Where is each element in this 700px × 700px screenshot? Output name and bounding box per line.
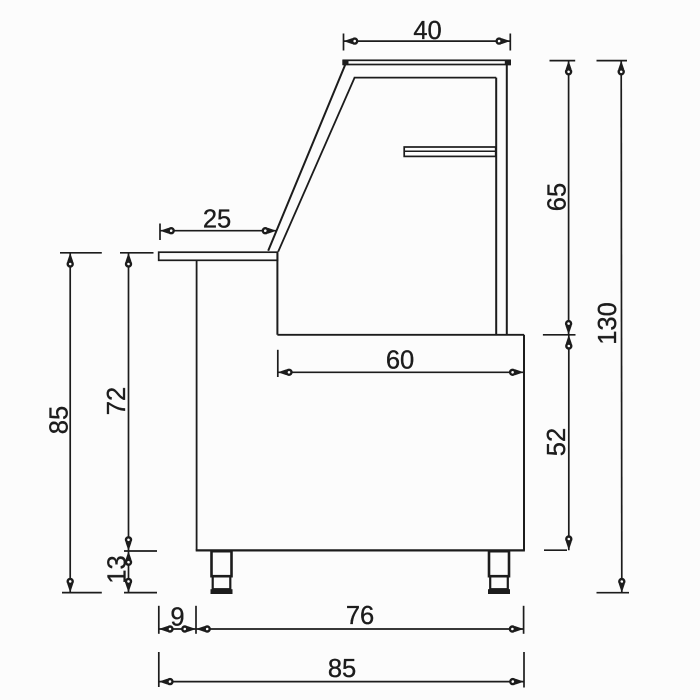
svg-text:76: 76 bbox=[346, 602, 374, 630]
svg-text:25: 25 bbox=[203, 205, 231, 233]
svg-text:85: 85 bbox=[46, 406, 74, 434]
svg-text:130: 130 bbox=[594, 302, 622, 345]
svg-text:9: 9 bbox=[170, 603, 184, 631]
svg-text:85: 85 bbox=[328, 655, 356, 683]
svg-text:13: 13 bbox=[104, 555, 132, 583]
svg-text:72: 72 bbox=[103, 387, 131, 415]
svg-text:65: 65 bbox=[544, 183, 572, 211]
svg-text:60: 60 bbox=[386, 347, 414, 375]
svg-text:52: 52 bbox=[543, 428, 571, 456]
svg-text:40: 40 bbox=[413, 17, 441, 45]
